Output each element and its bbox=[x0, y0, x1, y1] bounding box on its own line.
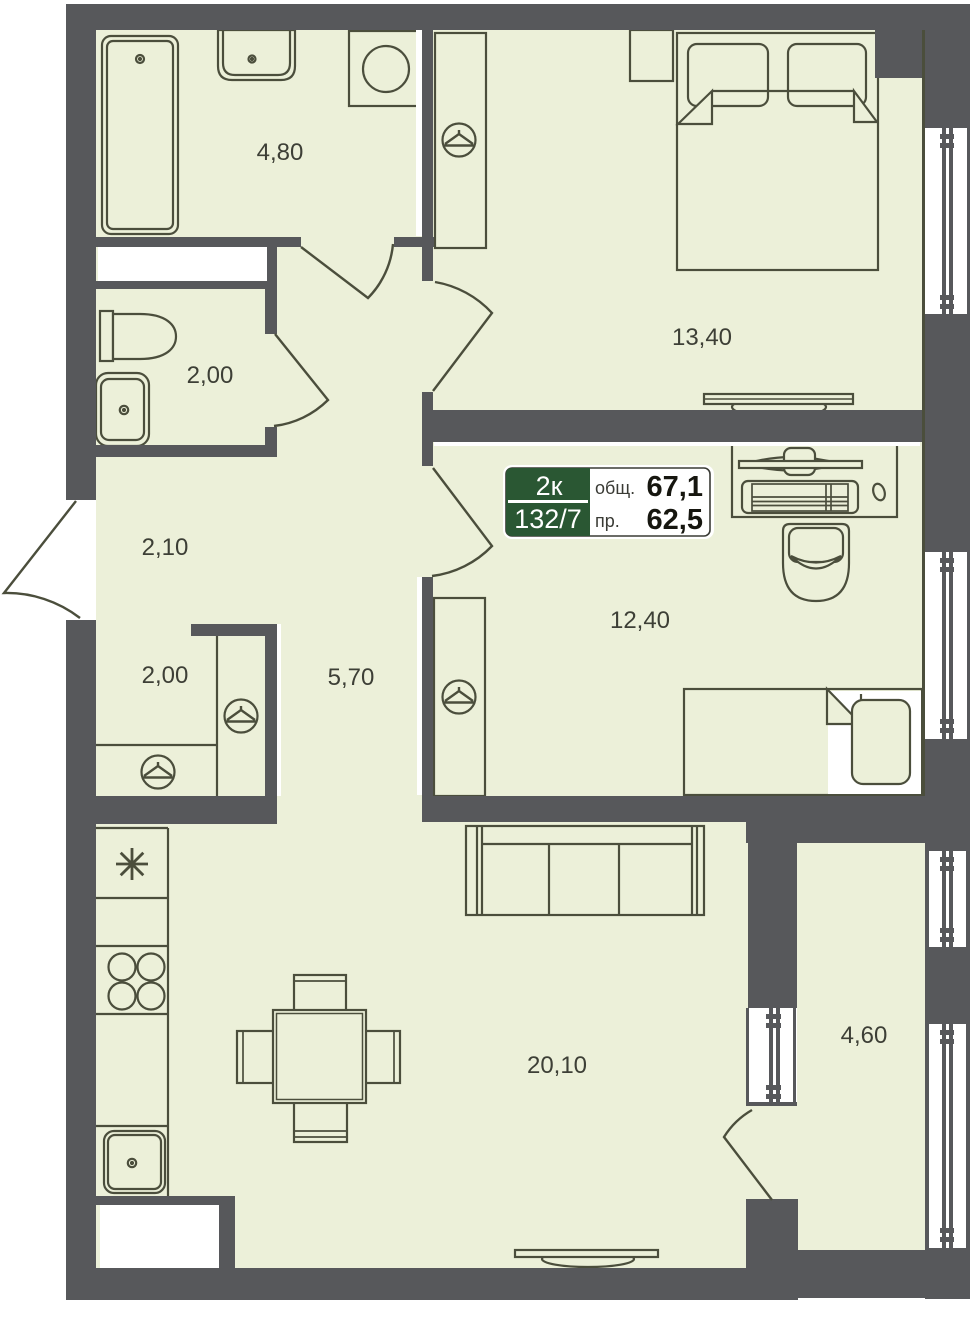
svg-text:13,40: 13,40 bbox=[672, 324, 732, 351]
svg-text:67,1: 67,1 bbox=[647, 471, 703, 503]
svg-text:2,10: 2,10 bbox=[142, 534, 189, 561]
svg-text:2,00: 2,00 bbox=[187, 362, 234, 389]
svg-text:2,00: 2,00 bbox=[142, 662, 189, 689]
svg-text:общ.: общ. bbox=[595, 478, 635, 498]
svg-text:2к: 2к bbox=[536, 471, 563, 501]
svg-text:12,40: 12,40 bbox=[610, 607, 670, 634]
svg-text:62,5: 62,5 bbox=[647, 504, 703, 536]
svg-text:4,80: 4,80 bbox=[257, 139, 304, 166]
svg-text:132/7: 132/7 bbox=[514, 504, 582, 534]
svg-text:20,10: 20,10 bbox=[527, 1052, 587, 1079]
svg-text:5,70: 5,70 bbox=[328, 664, 375, 691]
svg-text:4,60: 4,60 bbox=[841, 1022, 888, 1049]
svg-text:пр.: пр. bbox=[595, 511, 620, 531]
